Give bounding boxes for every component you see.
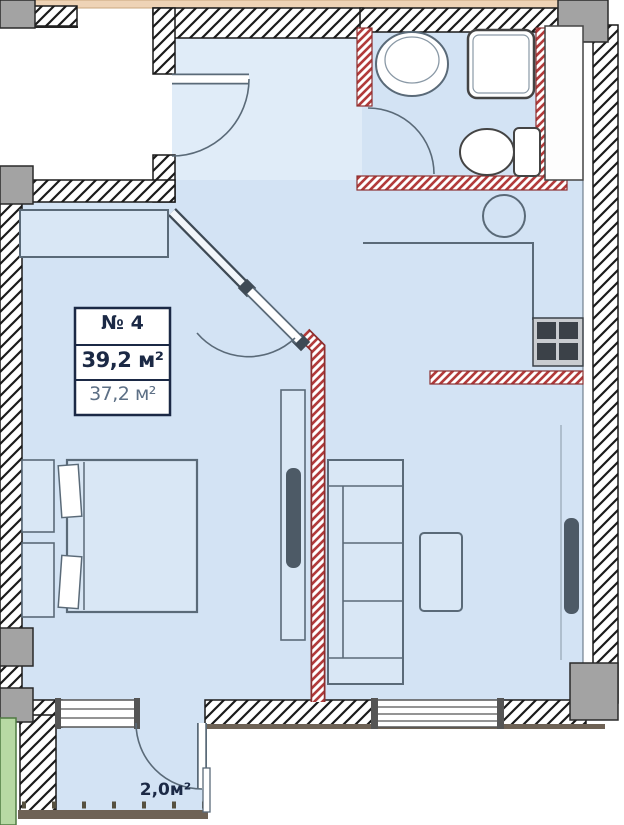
unit-number-label: № 4 xyxy=(75,314,170,334)
balcony-area-label: 2,0м² xyxy=(118,782,213,800)
nightstand-upper xyxy=(22,460,54,532)
nightstand-lower xyxy=(22,543,54,617)
wall-right-inner-face xyxy=(583,25,593,703)
wall-top-left-stub xyxy=(33,6,77,26)
ventilation-shaft xyxy=(545,26,583,180)
bed xyxy=(58,460,197,612)
wall-bottom-center xyxy=(205,700,377,727)
wardrobe-bedroom xyxy=(20,210,168,257)
wall-balcony-left xyxy=(20,715,56,815)
column-top-left xyxy=(0,0,35,28)
upper-slab-strip xyxy=(30,0,558,8)
sofa xyxy=(328,460,403,684)
partition-bathroom-left xyxy=(357,28,372,106)
window-living-room xyxy=(371,698,504,729)
coffee-table xyxy=(420,533,462,611)
wall-hallway-top xyxy=(153,8,363,38)
pillow-bottom xyxy=(58,555,82,608)
adjacent-balcony-green-strip xyxy=(0,718,16,825)
balcony-railing xyxy=(18,810,208,819)
partition-bathroom-bottom xyxy=(357,176,567,190)
floor-plan-svg xyxy=(0,0,624,825)
floor-plan: № 4 39,2 м² 37,2 м² 2,0м² xyxy=(0,0,624,825)
total-area-label: 39,2 м² xyxy=(75,349,170,371)
radiator-right-wall xyxy=(564,518,579,614)
column-balcony-corner xyxy=(0,688,33,722)
partition-kitchen-stub xyxy=(430,371,583,384)
column-left-lower xyxy=(0,628,33,666)
window-bedroom-balcony xyxy=(55,698,140,729)
kitchen-stove xyxy=(533,318,583,366)
bedroom-floor xyxy=(20,200,315,702)
hallway-floor xyxy=(172,30,362,180)
toilet xyxy=(460,128,540,176)
column-left-upper xyxy=(0,166,33,204)
shower-cabin xyxy=(468,30,534,98)
column-bottom-right xyxy=(570,663,618,720)
pillow-top xyxy=(58,464,82,517)
wall-exterior-right xyxy=(593,25,618,703)
bathroom-sink xyxy=(376,32,448,96)
wall-bathroom-top xyxy=(360,8,558,32)
radiator-partition xyxy=(286,468,301,568)
wall-entry-jamb-upper xyxy=(153,8,175,74)
living-area-label: 37,2 м² xyxy=(75,385,170,405)
